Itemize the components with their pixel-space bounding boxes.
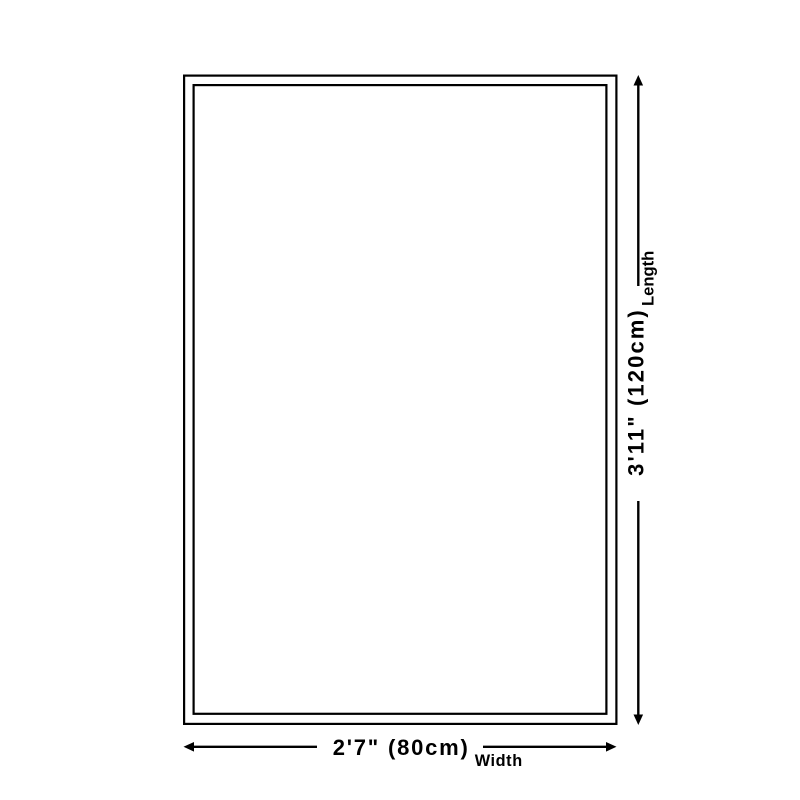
svg-text:3'11" (120cm): 3'11" (120cm) (624, 308, 649, 476)
svg-text:2'7" (80cm): 2'7" (80cm) (333, 735, 470, 760)
svg-text:Width: Width (475, 752, 523, 770)
svg-text:Length: Length (638, 251, 657, 306)
